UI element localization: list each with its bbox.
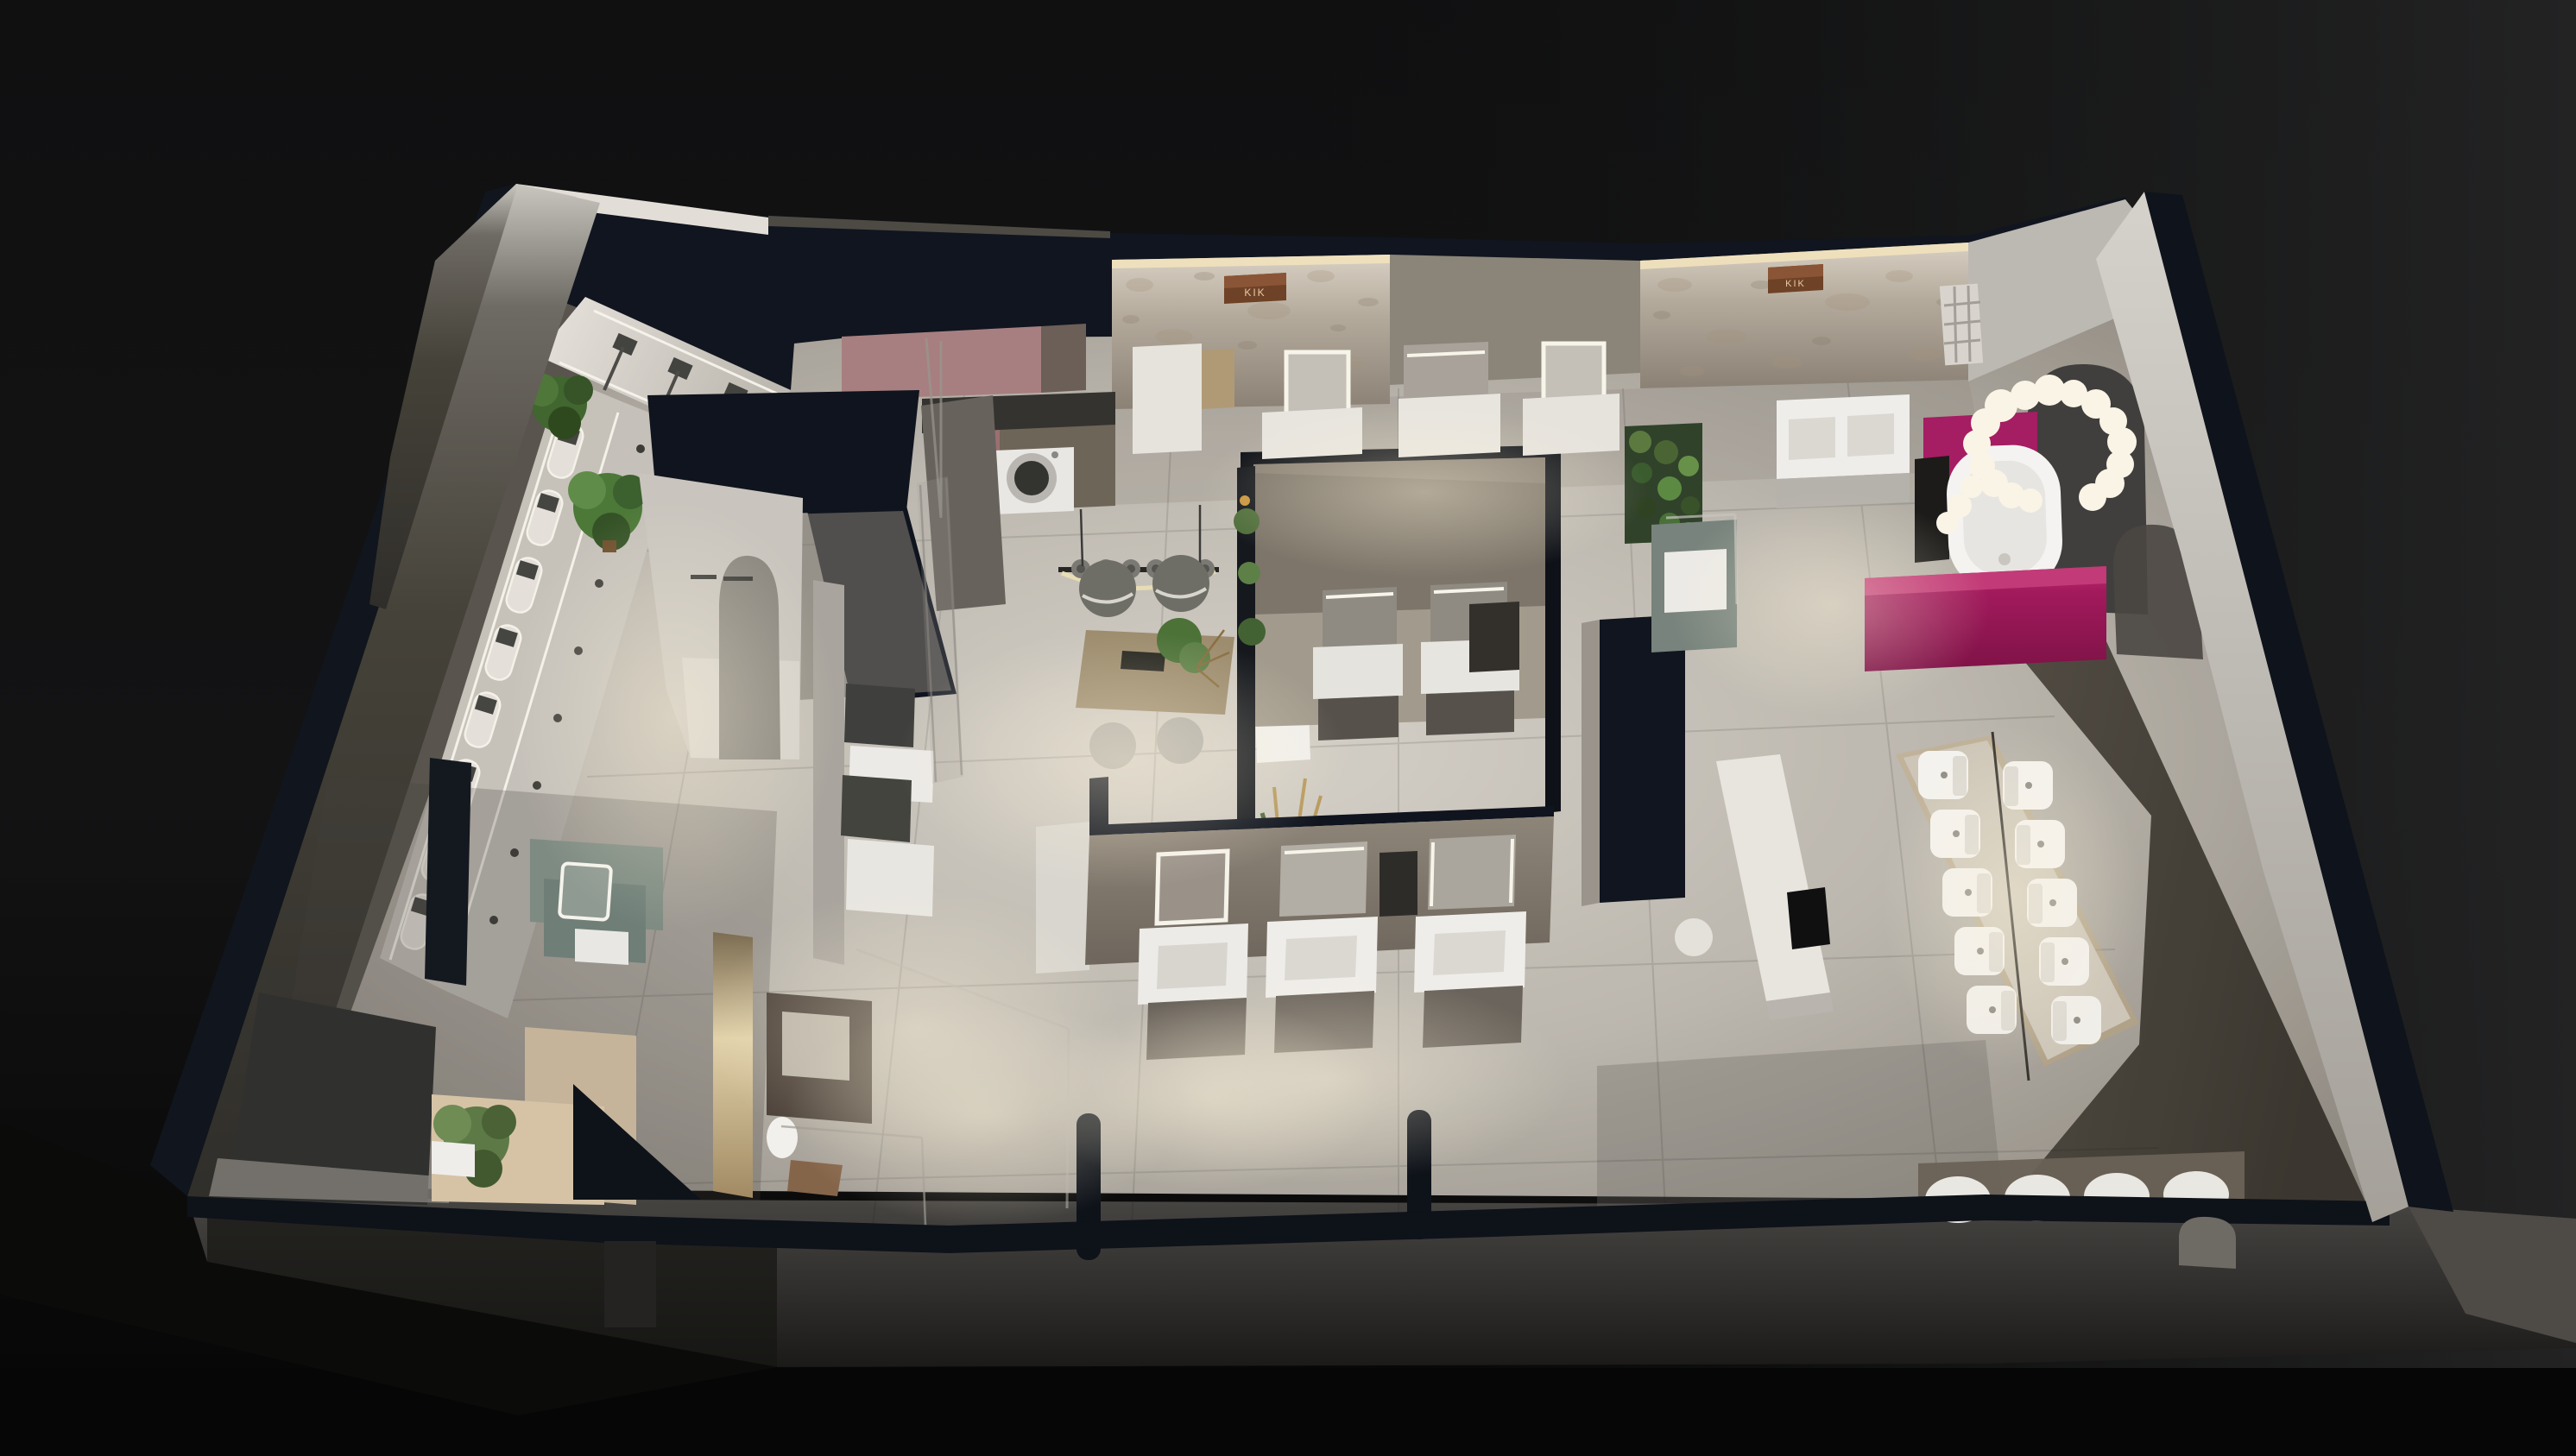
svg-text:KIK: KIK: [1785, 279, 1806, 289]
svg-text:KIK: KIK: [1244, 287, 1266, 299]
